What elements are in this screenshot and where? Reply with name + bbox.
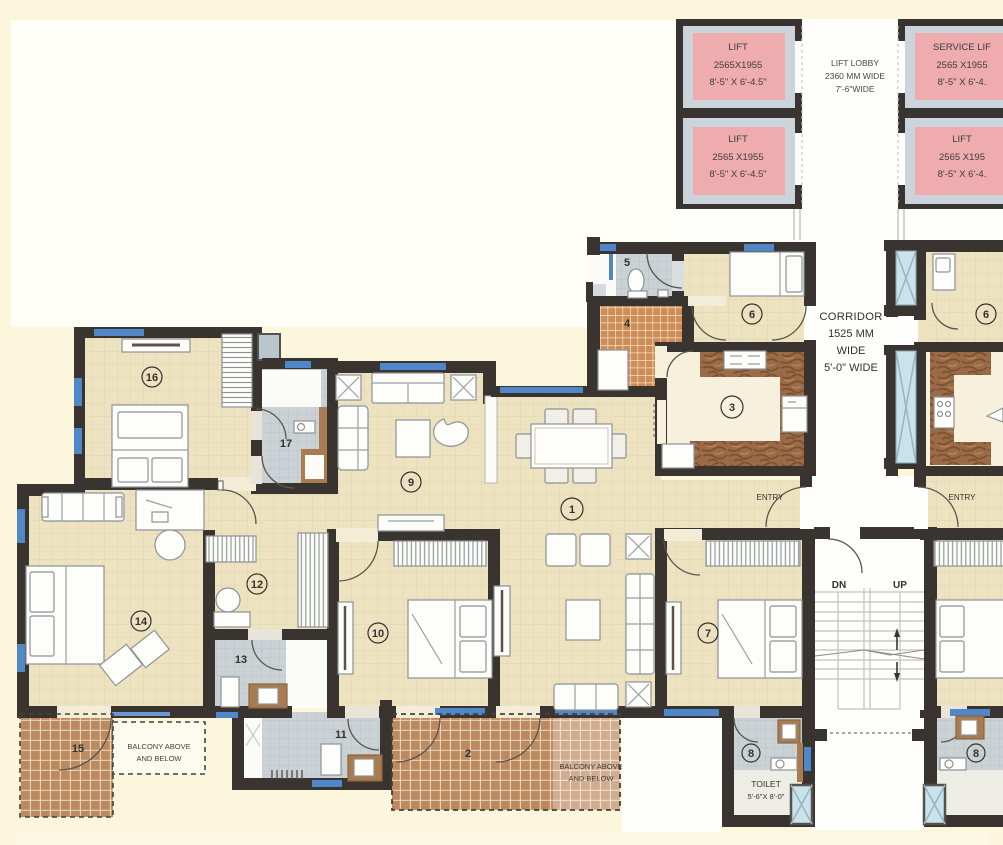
svg-text:ENTRY: ENTRY [949, 493, 977, 502]
svg-text:11: 11 [335, 729, 347, 741]
svg-text:8'-5" X 6'-4.5": 8'-5" X 6'-4.5" [709, 77, 766, 88]
svg-text:SERVICE LIF: SERVICE LIF [933, 42, 991, 53]
svg-text:LIFT LOBBY: LIFT LOBBY [831, 58, 879, 68]
svg-text:2: 2 [465, 748, 471, 760]
svg-text:8'-5" X 6'-4.: 8'-5" X 6'-4. [938, 169, 987, 180]
svg-text:LIFT: LIFT [952, 134, 972, 145]
svg-text:1: 1 [569, 504, 575, 516]
svg-text:2360 MM WIDE: 2360 MM WIDE [825, 71, 885, 81]
svg-text:5'-6"X 8'-0": 5'-6"X 8'-0" [748, 792, 785, 801]
svg-text:15: 15 [72, 743, 84, 755]
svg-text:2565 X1955: 2565 X1955 [936, 60, 987, 71]
svg-text:7: 7 [705, 628, 711, 640]
svg-text:7'-6"WIDE: 7'-6"WIDE [835, 84, 874, 94]
svg-text:2565X1955: 2565X1955 [714, 60, 763, 71]
svg-text:3: 3 [729, 402, 735, 414]
svg-text:16: 16 [146, 372, 158, 384]
svg-text:8: 8 [973, 748, 979, 760]
svg-text:8'-5" X 6'-4.5": 8'-5" X 6'-4.5" [709, 169, 766, 180]
svg-text:6: 6 [749, 309, 755, 321]
svg-text:1525 MM: 1525 MM [828, 328, 874, 340]
svg-text:5'-0" WIDE: 5'-0" WIDE [824, 362, 878, 374]
svg-text:DN: DN [832, 580, 846, 591]
svg-text:10: 10 [372, 628, 384, 640]
svg-text:17: 17 [280, 438, 292, 450]
svg-text:12: 12 [251, 579, 263, 591]
svg-text:4: 4 [624, 318, 631, 330]
svg-text:6: 6 [983, 309, 989, 321]
svg-text:8'-5" X 6'-4.: 8'-5" X 6'-4. [938, 77, 987, 88]
svg-text:TOILET: TOILET [751, 779, 781, 789]
svg-text:ENTRY: ENTRY [757, 493, 785, 502]
svg-text:UP: UP [893, 580, 907, 591]
svg-text:8: 8 [748, 748, 754, 760]
svg-text:14: 14 [135, 616, 148, 628]
svg-text:LIFT: LIFT [728, 134, 748, 145]
svg-text:AND BELOW: AND BELOW [568, 774, 614, 783]
svg-text:13: 13 [235, 654, 247, 666]
svg-text:5: 5 [624, 257, 630, 269]
svg-text:9: 9 [408, 477, 414, 489]
svg-text:BALCONY ABOVE: BALCONY ABOVE [127, 742, 190, 751]
svg-text:AND BELOW: AND BELOW [136, 754, 182, 763]
svg-text:2565 X1955: 2565 X1955 [712, 152, 763, 163]
svg-text:BALCONY ABOVE: BALCONY ABOVE [559, 762, 622, 771]
svg-text:2565 X195: 2565 X195 [939, 152, 985, 163]
svg-text:CORRIDOR: CORRIDOR [819, 311, 882, 323]
svg-text:WIDE: WIDE [837, 345, 866, 357]
svg-text:LIFT: LIFT [728, 42, 748, 53]
